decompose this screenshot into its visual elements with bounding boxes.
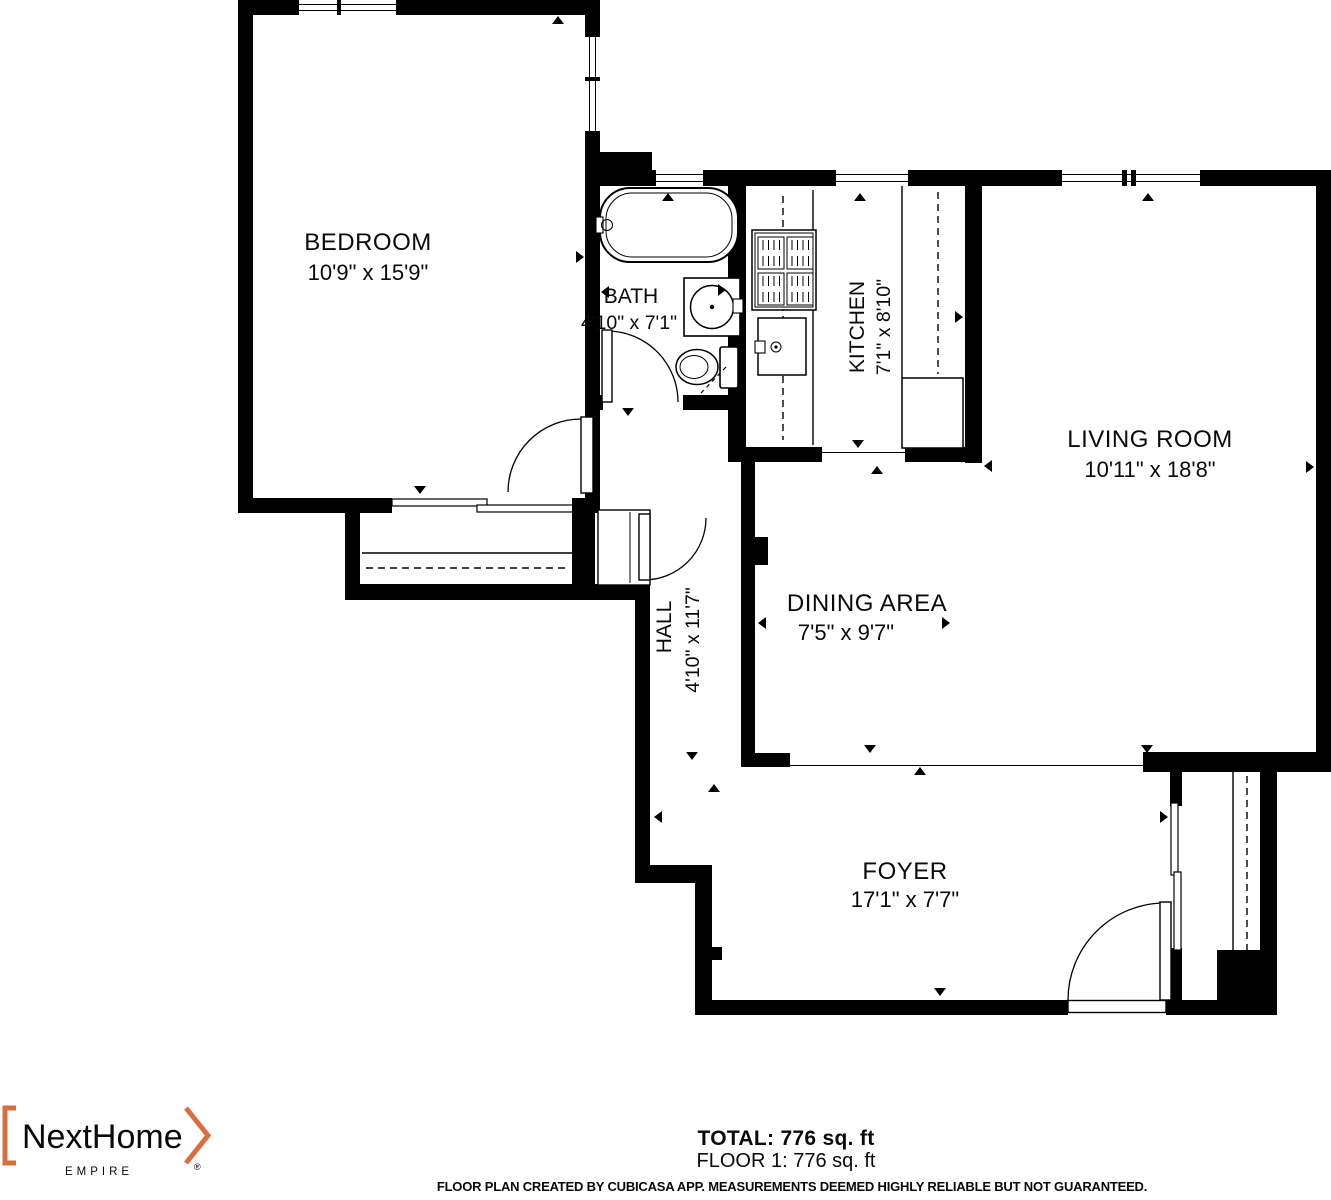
brand-logo: NextHome ® EMPIRE [5,1108,208,1178]
room-label-hall: HALL [653,601,676,654]
room-dims-foyer: 17'1" x 7'7" [851,887,959,912]
room-label-dining: DINING AREA [787,590,947,617]
kitchen-sink-icon [755,318,806,375]
disclaimer-text: FLOOR PLAN CREATED BY CUBICASA APP. MEAS… [437,1179,1147,1194]
foyer-closet [1171,772,1247,958]
bedroom-closet [362,553,572,568]
logo-text: NextHome [22,1118,183,1156]
floor-area-text: FLOOR 1: 776 sq. ft [697,1150,876,1172]
room-label-bath: BATH [604,285,658,308]
room-label-bedroom: BEDROOM [304,229,432,256]
logo-subtext: EMPIRE [65,1166,133,1178]
room-dims-bedroom: 10'9" x 15'9" [308,260,429,285]
room-dims-living: 10'11" x 18'8" [1084,457,1215,482]
living-window-icon [1055,170,1207,186]
bedroom-right-window-icon [585,30,600,138]
room-label-kitchen: KITCHEN [846,281,869,373]
room-label-foyer: FOYER [862,858,947,885]
kitchen-window-icon [829,170,915,186]
windows [292,0,1207,186]
bath-window-icon [650,170,709,186]
logo-chevron-icon [186,1108,208,1163]
bath-sink-icon [684,278,743,336]
room-dims-dining: 7'5" x 9'7" [798,620,894,645]
entry-door-icon [1068,902,1171,1013]
toilet-icon [676,347,738,388]
room-label-living: LIVING ROOM [1067,426,1233,453]
room-dims-hall: 4'10" x 11'7" [682,587,704,693]
area-summary: TOTAL: 776 sq. ft FLOOR 1: 776 sq. ft [697,1127,876,1172]
logo-registered-mark: ® [194,1162,201,1172]
room-dims-bath: 4'10" x 7'1" [581,312,677,334]
logo-bracket-icon [5,1108,16,1163]
stove-icon [752,230,816,310]
bedroom-top-window-icon [292,0,403,15]
total-area-text: TOTAL: 776 sq. ft [697,1127,874,1150]
floorplan-canvas: BEDROOM 10'9" x 15'9" BATH 4'10" x 7'1" … [0,0,1331,1200]
bath-door-icon [602,330,678,402]
bedroom-door-icon [508,417,593,493]
hall-door-icon [598,510,706,585]
room-dims-kitchen: 7'1" x 8'10" [873,279,895,375]
floorplan-page: BEDROOM 10'9" x 15'9" BATH 4'10" x 7'1" … [0,0,1331,1200]
